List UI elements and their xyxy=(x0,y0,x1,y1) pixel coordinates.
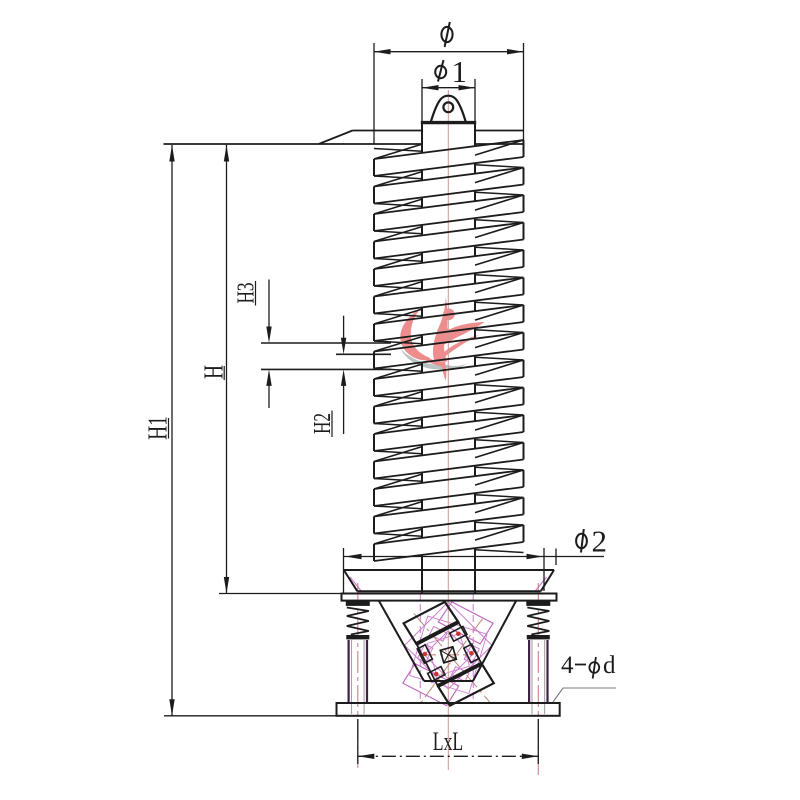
svg-text:d: d xyxy=(603,652,616,679)
svg-text:LxL: LxL xyxy=(433,727,463,756)
svg-text:2: 2 xyxy=(592,524,608,559)
svg-text:H: H xyxy=(200,365,230,379)
svg-text:4: 4 xyxy=(561,652,574,679)
svg-text:1: 1 xyxy=(452,54,468,89)
